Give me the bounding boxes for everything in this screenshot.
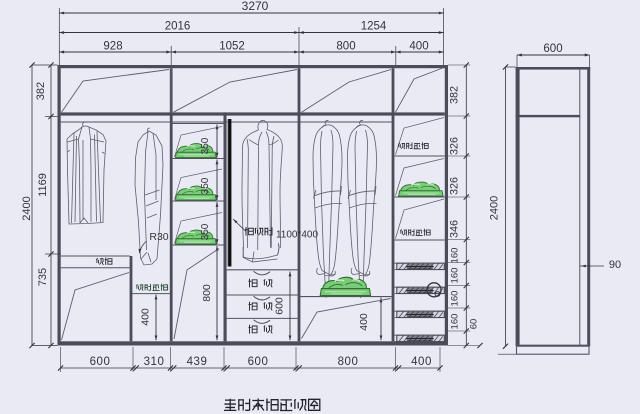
svg-text:60: 60	[469, 319, 480, 330]
svg-text:2400: 2400	[21, 196, 33, 220]
svg-text:160: 160	[450, 291, 461, 307]
svg-text:1100*400: 1100*400	[276, 230, 319, 241]
svg-text:439: 439	[187, 356, 208, 368]
svg-text:160: 160	[450, 314, 461, 330]
svg-text:350: 350	[200, 137, 211, 154]
svg-text:400: 400	[411, 356, 432, 368]
svg-text:1254: 1254	[361, 21, 387, 33]
svg-text:350: 350	[200, 177, 211, 194]
svg-text:3270: 3270	[242, 0, 269, 13]
svg-text:160: 160	[450, 248, 461, 264]
svg-text:350: 350	[200, 223, 211, 240]
svg-text:326: 326	[449, 177, 461, 195]
svg-text:800: 800	[336, 41, 355, 53]
svg-text:600: 600	[274, 297, 286, 315]
svg-text:R30: R30	[149, 231, 168, 243]
svg-text:2016: 2016	[165, 21, 191, 33]
svg-text:400: 400	[409, 41, 428, 53]
svg-text:800: 800	[338, 356, 359, 368]
svg-text:382: 382	[35, 82, 47, 100]
svg-text:2400: 2400	[489, 196, 501, 220]
svg-text:600: 600	[90, 356, 111, 368]
svg-text:800: 800	[201, 284, 213, 302]
svg-text:600: 600	[248, 356, 269, 368]
svg-text:346: 346	[449, 220, 461, 238]
svg-text:90: 90	[609, 259, 621, 271]
svg-text:1052: 1052	[219, 41, 245, 53]
svg-text:928: 928	[103, 41, 122, 53]
svg-text:400: 400	[358, 313, 370, 331]
svg-text:160: 160	[450, 268, 461, 284]
svg-text:600: 600	[543, 43, 562, 55]
svg-text:326: 326	[449, 137, 461, 155]
svg-text:382: 382	[449, 86, 461, 104]
svg-text:310: 310	[144, 356, 165, 368]
svg-text:400: 400	[140, 308, 152, 326]
svg-text:735: 735	[37, 268, 49, 286]
svg-text:1169: 1169	[37, 173, 49, 197]
